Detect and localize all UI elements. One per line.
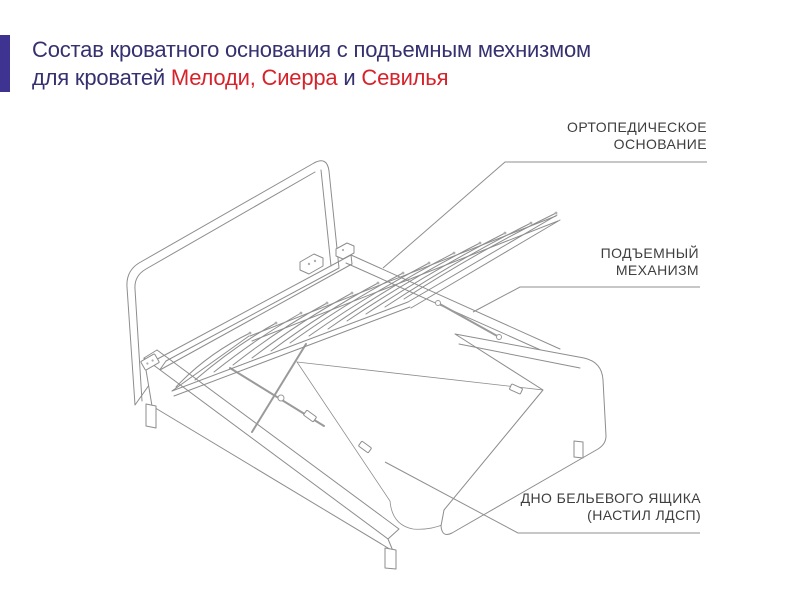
bed-diagram: ОРТОПЕДИЧЕСКОЕ ОСНОВАНИЕ ПОДЪЕМНЫЙ МЕХАН… bbox=[0, 0, 800, 600]
callout-lift-mechanism-line-2: МЕХАНИЗМ bbox=[469, 262, 699, 279]
callout-drawer-bottom-line-1: ДНО БЕЛЬЕВОГО ЯЩИКА bbox=[471, 490, 701, 507]
infographic-page: Состав кроватного основания с подъемным … bbox=[0, 0, 800, 600]
leader-lift-mechanism bbox=[473, 287, 700, 312]
callout-drawer-bottom-line-2: (НАСТИЛ ЛДСП) bbox=[471, 507, 701, 524]
slider-hardware bbox=[303, 384, 522, 453]
callout-orthopedic-base-line-2: ОСНОВАНИЕ bbox=[477, 136, 707, 153]
callout-lift-mechanism-line-1: ПОДЪЕМНЫЙ bbox=[469, 245, 699, 262]
callout-drawer-bottom: ДНО БЕЛЬЕВОГО ЯЩИКА (НАСТИЛ ЛДСП) bbox=[471, 490, 701, 524]
callout-orthopedic-base-line-1: ОРТОПЕДИЧЕСКОЕ bbox=[477, 119, 707, 136]
callout-orthopedic-base: ОРТОПЕДИЧЕСКОЕ ОСНОВАНИЕ bbox=[477, 119, 707, 153]
callout-lift-mechanism: ПОДЪЕМНЫЙ МЕХАНИЗМ bbox=[469, 245, 699, 279]
